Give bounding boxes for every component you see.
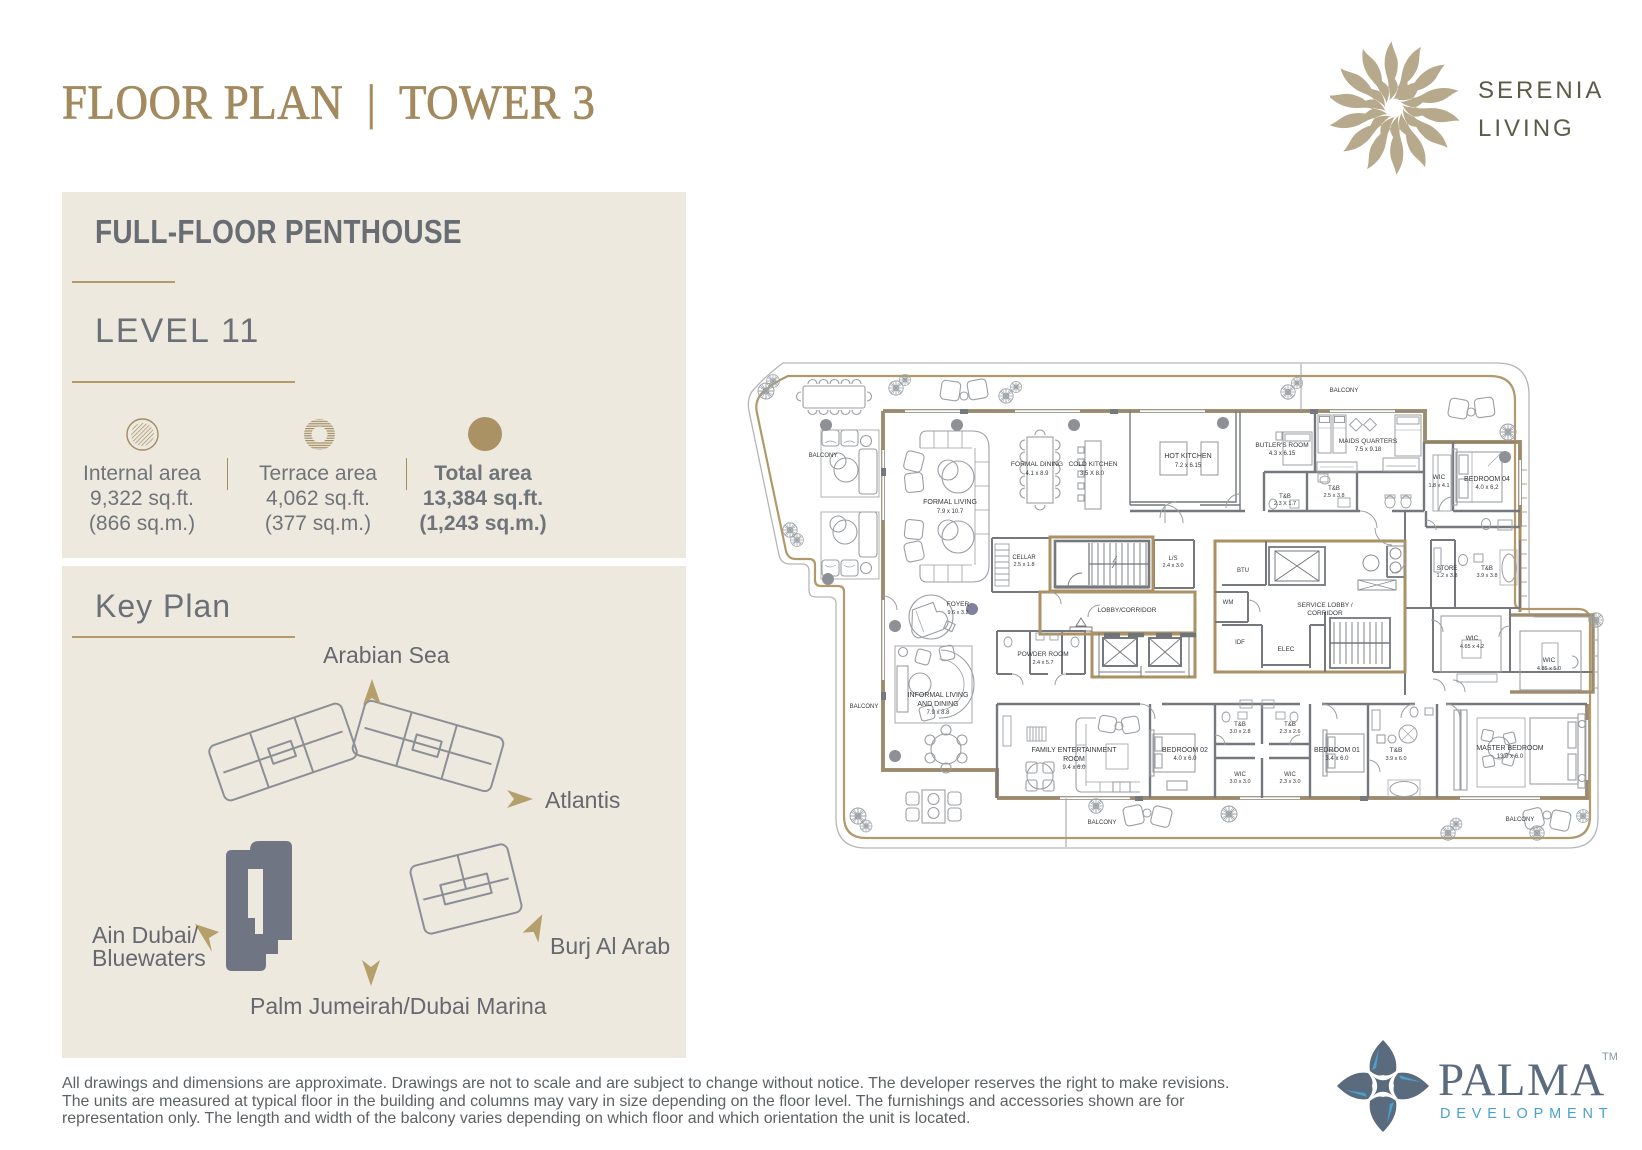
svg-text:4.3 x 6.15: 4.3 x 6.15 bbox=[1269, 451, 1296, 457]
svg-text:AND DINING: AND DINING bbox=[917, 701, 958, 708]
svg-text:2.3 x 3.0: 2.3 x 3.0 bbox=[1279, 779, 1300, 785]
svg-text:BUTLER'S ROOM: BUTLER'S ROOM bbox=[1255, 442, 1308, 449]
svg-text:FORMAL LIVING: FORMAL LIVING bbox=[923, 499, 977, 506]
svg-text:4.1 x 8.9: 4.1 x 8.9 bbox=[1025, 471, 1049, 477]
svg-text:4.0 x 6.0: 4.0 x 6.0 bbox=[1173, 756, 1197, 762]
svg-text:9.6 x 3.2: 9.6 x 3.2 bbox=[947, 610, 968, 616]
svg-text:BALCONY: BALCONY bbox=[850, 704, 879, 710]
svg-text:LOBBY/CORRIDOR: LOBBY/CORRIDOR bbox=[1098, 607, 1157, 614]
svg-text:1.2 x 3.8: 1.2 x 3.8 bbox=[1436, 573, 1457, 579]
svg-text:FAMILY ENTERTAINMENT: FAMILY ENTERTAINMENT bbox=[1031, 747, 1117, 754]
svg-text:STORE: STORE bbox=[1437, 566, 1458, 572]
svg-text:2.4 x 5.7: 2.4 x 5.7 bbox=[1032, 660, 1053, 666]
svg-text:MAIDS QUARTERS: MAIDS QUARTERS bbox=[1339, 438, 1398, 445]
svg-text:4.85 x 5.0: 4.85 x 5.0 bbox=[1537, 666, 1561, 672]
svg-text:3.5 X 8.0: 3.5 X 8.0 bbox=[1080, 471, 1105, 477]
svg-text:BEDROOM 02: BEDROOM 02 bbox=[1162, 747, 1208, 754]
svg-text:BALCONY: BALCONY bbox=[809, 453, 838, 459]
svg-text:ROOM: ROOM bbox=[1063, 756, 1085, 763]
svg-text:3.9 x 6.0: 3.9 x 6.0 bbox=[1385, 756, 1406, 762]
svg-text:FOYER: FOYER bbox=[947, 601, 970, 608]
svg-text:SERVICE LOBBY /: SERVICE LOBBY / bbox=[1297, 602, 1353, 609]
svg-text:BALCONY: BALCONY bbox=[1506, 817, 1535, 823]
svg-text:2.5 x 3.8: 2.5 x 3.8 bbox=[1323, 493, 1344, 499]
svg-text:4.0 x 6.2: 4.0 x 6.2 bbox=[1475, 485, 1499, 491]
svg-text:T&B: T&B bbox=[1481, 566, 1493, 572]
svg-text:13.0 x 6.0: 13.0 x 6.0 bbox=[1497, 754, 1524, 760]
svg-text:INFORMAL LIVING: INFORMAL LIVING bbox=[908, 692, 969, 699]
svg-text:IDF: IDF bbox=[1235, 640, 1245, 646]
svg-text:MASTER BEDROOM: MASTER BEDROOM bbox=[1476, 745, 1543, 752]
svg-text:TM: TM bbox=[1602, 1051, 1618, 1063]
svg-text:3.0 x 2.8: 3.0 x 2.8 bbox=[1229, 729, 1250, 735]
svg-text:BALCONY: BALCONY bbox=[1330, 388, 1359, 394]
svg-text:WIC: WIC bbox=[1234, 772, 1246, 778]
svg-text:Atlantis: Atlantis bbox=[545, 787, 620, 813]
svg-text:WIC: WIC bbox=[1466, 635, 1479, 642]
svg-text:PALMA: PALMA bbox=[1438, 1054, 1606, 1106]
svg-text:WIC: WIC bbox=[1284, 772, 1296, 778]
svg-text:Bluewaters: Bluewaters bbox=[92, 945, 206, 971]
svg-text:WIC: WIC bbox=[1433, 474, 1446, 481]
svg-text:2.3 X 1.7: 2.3 X 1.7 bbox=[1274, 501, 1296, 507]
svg-text:L/S: L/S bbox=[1168, 556, 1177, 562]
svg-text:SERENIA: SERENIA bbox=[1478, 77, 1604, 104]
svg-text:WM: WM bbox=[1223, 600, 1234, 606]
svg-text:1.8 x 4.1: 1.8 x 4.1 bbox=[1428, 483, 1449, 489]
svg-text:FORMAL DINING: FORMAL DINING bbox=[1011, 461, 1063, 468]
svg-text:Burj Al Arab: Burj Al Arab bbox=[550, 933, 670, 959]
svg-text:2.5 x 1.8: 2.5 x 1.8 bbox=[1013, 562, 1034, 568]
svg-text:CORRIDOR: CORRIDOR bbox=[1307, 610, 1343, 617]
svg-text:HOT KITCHEN: HOT KITCHEN bbox=[1164, 453, 1211, 460]
svg-text:9.4 x 6.0: 9.4 x 6.0 bbox=[1062, 765, 1086, 771]
svg-text:ELEC: ELEC bbox=[1278, 646, 1295, 653]
svg-text:T&B: T&B bbox=[1284, 722, 1296, 728]
svg-text:Arabian Sea: Arabian Sea bbox=[323, 642, 450, 668]
svg-text:3.4 x 6.0: 3.4 x 6.0 bbox=[1325, 756, 1349, 762]
svg-text:CELLAR: CELLAR bbox=[1012, 555, 1036, 561]
svg-text:WIC: WIC bbox=[1543, 657, 1556, 664]
svg-text:2.3 x 2.6: 2.3 x 2.6 bbox=[1279, 729, 1300, 735]
svg-text:POWDER ROOM: POWDER ROOM bbox=[1017, 651, 1068, 658]
svg-text:BEDROOM 04: BEDROOM 04 bbox=[1464, 476, 1510, 483]
svg-text:7.2 x 6.15: 7.2 x 6.15 bbox=[1175, 463, 1202, 469]
svg-text:T&B: T&B bbox=[1390, 747, 1403, 754]
svg-text:DEVELOPMENT: DEVELOPMENT bbox=[1440, 1106, 1613, 1122]
svg-text:BALCONY: BALCONY bbox=[1088, 820, 1117, 826]
svg-text:BEDROOM 01: BEDROOM 01 bbox=[1314, 747, 1360, 754]
svg-text:7.9 x 8.8: 7.9 x 8.8 bbox=[926, 710, 950, 716]
svg-text:7.9 x 10.7: 7.9 x 10.7 bbox=[937, 509, 964, 515]
svg-text:T&B: T&B bbox=[1328, 486, 1340, 492]
svg-text:3.9 x 3.8: 3.9 x 3.8 bbox=[1476, 573, 1497, 579]
svg-text:LIVING: LIVING bbox=[1478, 115, 1575, 142]
svg-text:T&B: T&B bbox=[1279, 494, 1291, 500]
svg-text:BTU: BTU bbox=[1237, 568, 1249, 574]
svg-text:COLD KITCHEN: COLD KITCHEN bbox=[1068, 461, 1117, 468]
svg-text:2.4 x 3.0: 2.4 x 3.0 bbox=[1162, 563, 1183, 569]
svg-text:T&B: T&B bbox=[1234, 722, 1246, 728]
svg-text:Palm Jumeirah/Dubai Marina: Palm Jumeirah/Dubai Marina bbox=[250, 993, 547, 1019]
svg-text:4.65 x 4.2: 4.65 x 4.2 bbox=[1460, 644, 1484, 650]
svg-text:7.5 x 9.18: 7.5 x 9.18 bbox=[1355, 447, 1382, 453]
svg-text:3.0 x 3.0: 3.0 x 3.0 bbox=[1229, 779, 1250, 785]
